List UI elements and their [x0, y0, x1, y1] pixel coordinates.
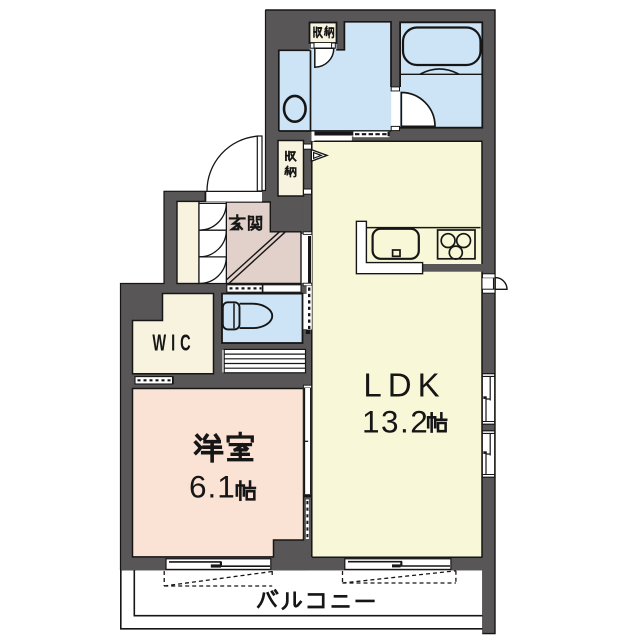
- svg-text:6.1: 6.1: [189, 469, 236, 505]
- svg-text:13.2: 13.2: [362, 403, 429, 439]
- svg-text:WIC: WIC: [152, 330, 195, 356]
- svg-text:LDK: LDK: [363, 366, 445, 403]
